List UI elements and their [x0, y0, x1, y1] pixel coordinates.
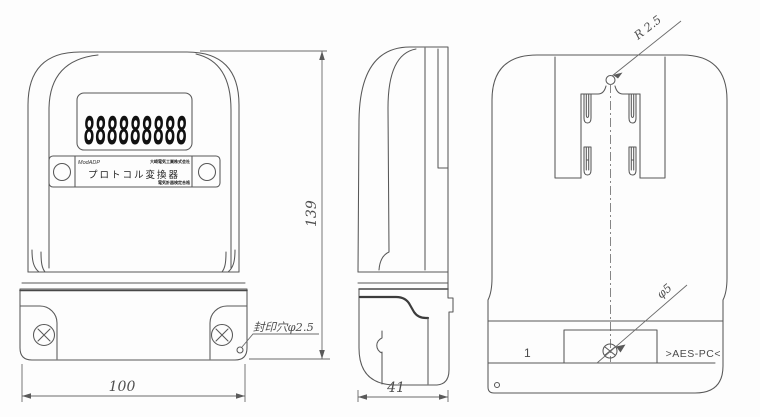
front-outline [28, 52, 239, 272]
front-view: 封印穴φ2.5 888888888 ModADP 大崎電気工業株式会社 プロトコ… [20, 51, 330, 402]
seal-hole-leader [242, 334, 319, 347]
side-grommet [377, 331, 382, 384]
screw-left [34, 325, 55, 346]
hook-slot-upper-left [584, 94, 591, 123]
dimension-depth-41: 41 [358, 380, 448, 402]
seal-hole-label: 封印穴φ2.5 [253, 320, 314, 334]
mold-number: 1 [524, 346, 531, 360]
seal-hole [237, 347, 243, 353]
hook-slot-upper-right [629, 94, 636, 123]
nameplate-maker-top: 大崎電気工業株式会社 [150, 158, 190, 164]
side-inner-line-1 [379, 49, 416, 270]
screw-pocket-right [210, 306, 247, 359]
screw-pocket-left [20, 306, 57, 359]
nameplate: ModADP 大崎電気工業株式会社 プロトコル変換器 電気計器検定合格 [49, 156, 220, 187]
back-outline [488, 55, 727, 393]
back-view: R 2.5 φ5 1 >AES-PC< [488, 12, 727, 393]
lcd-display: 888888888 [77, 93, 192, 154]
front-foot-right [222, 250, 235, 272]
side-recess-step [438, 49, 448, 168]
side-cover-step-edge [360, 297, 428, 318]
width-dim-text: 100 [109, 379, 136, 395]
drawing-sheet: 封印穴φ2.5 888888888 ModADP 大崎電気工業株式会社 プロトコ… [0, 0, 760, 417]
back-pilot-hole [495, 383, 500, 388]
height-dim-text: 139 [304, 200, 320, 227]
nameplate-maker-bottom: 電気計器検定合格 [158, 179, 191, 185]
front-foot-left [32, 250, 45, 272]
technical-drawing: 封印穴φ2.5 888888888 ModADP 大崎電気工業株式会社 プロトコ… [0, 0, 760, 417]
side-view: 41 [358, 47, 453, 402]
material-marking: >AES-PC< [666, 348, 721, 360]
dimension-height-139: 139 [200, 51, 330, 359]
indicator-hole-left [54, 164, 71, 181]
front-inner-line-right [196, 54, 231, 268]
hook-slot-lower-left [584, 147, 591, 175]
radius-callout: R 2.5 [612, 12, 681, 78]
lcd-digits: 888888888 [83, 110, 188, 154]
screw-right [212, 325, 233, 346]
mounting-recess [555, 57, 665, 178]
hook-slot-lower-right [629, 147, 636, 175]
indicator-hole-right [199, 164, 216, 181]
side-outline-upper [358, 47, 448, 272]
side-band-lines [358, 272, 448, 283]
depth-dim-text: 41 [386, 380, 405, 396]
nameplate-brand: ModADP [78, 160, 100, 166]
dimension-width-100: 100 [22, 364, 245, 402]
hanging-hole [606, 76, 615, 85]
terminal-cover-outline [20, 289, 247, 360]
